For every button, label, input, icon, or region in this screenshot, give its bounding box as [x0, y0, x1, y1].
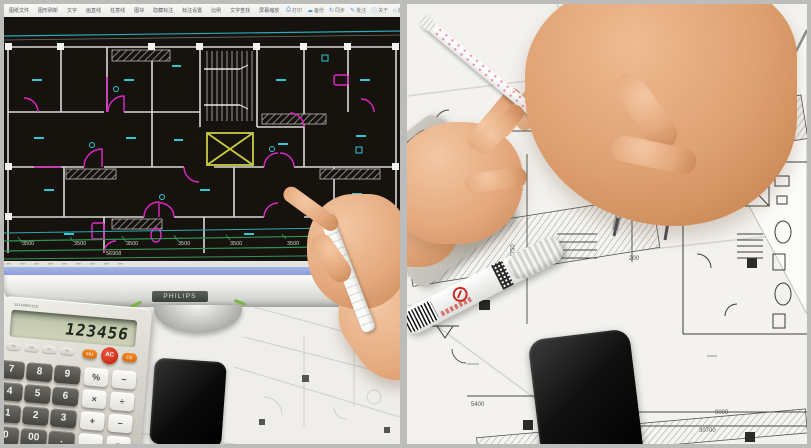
dimension-value: 3500 — [126, 241, 138, 247]
num-key: 4 — [4, 382, 23, 402]
smartphone — [149, 358, 227, 444]
op-key — [78, 433, 103, 444]
menu-item: 比例 — [209, 7, 223, 14]
num-key: 3 — [50, 408, 77, 428]
calculator: SUNWOOD 123456 MC MR M− M+ MU AC CE 7 8 … — [4, 296, 152, 444]
menu-item: 文字 — [65, 7, 79, 14]
toolbar-icon-group: ↻同步 — [329, 7, 345, 14]
left-photo: 图纸文件 图形刷新 文字 画直线 任意线 图块 隐藏标注 标注设置 比例 文字查… — [4, 4, 400, 444]
num-key: 9 — [54, 365, 81, 385]
op-key: × — [82, 389, 107, 409]
op-key: − — [107, 413, 132, 433]
memory-key: MC — [6, 342, 21, 350]
num-key: 7 — [4, 360, 25, 380]
cad-menubar: 图纸文件 图形刷新 文字 画直线 任意线 图块 隐藏标注 标注设置 比例 文字查… — [4, 4, 400, 17]
mu-key: MU — [82, 349, 98, 359]
dimension-value: 3500 — [287, 241, 299, 247]
home-icon: ⌂ — [393, 8, 397, 14]
dimension-value: 3500 — [22, 241, 34, 247]
print-icon: ⎙ — [286, 7, 291, 14]
icon-label: 首页 — [398, 7, 400, 14]
dimension-value: 3500 — [74, 241, 86, 247]
toolbar-icon-group: ☁备份 — [307, 7, 324, 14]
menu-item: 图块 — [132, 7, 146, 14]
menu-item: 任意线 — [108, 7, 127, 14]
equals-key: = — [106, 435, 131, 444]
num-key: 2 — [22, 406, 49, 426]
menu-item: 图形刷新 — [36, 7, 60, 14]
dimension-value: 3500 — [230, 241, 242, 247]
memory-key: MR — [24, 344, 39, 352]
icon-label: 同步 — [335, 7, 345, 14]
dimension-value: 3500 — [178, 241, 190, 247]
op-key: % — [83, 367, 108, 387]
toolbar-icon-group: ⌂首页 — [393, 7, 400, 14]
blueprint-dimension: 5400 — [471, 402, 484, 408]
num-key: 1 — [4, 404, 21, 424]
cloud-icon: ☁ — [307, 7, 313, 14]
menu-item: 图纸文件 — [7, 7, 31, 14]
num-key: 5 — [24, 384, 51, 404]
icon-label: 批注 — [356, 7, 366, 14]
edit-icon: ✎ — [350, 7, 355, 14]
monitor-brand-logo: PHILIPS — [152, 291, 208, 302]
toolbar-icon-group: ⎙打印 — [286, 7, 302, 14]
menu-item: 屏幕缩放 — [257, 7, 281, 14]
right-photo: 5400 9000 30700 200 2000 3750 0 0 1 4 — [407, 4, 807, 444]
toolbar-icon-group: ⓘ关于 — [371, 6, 388, 15]
smartphone — [527, 328, 644, 444]
icon-label: 关于 — [378, 7, 388, 14]
menu-item: 标注设置 — [180, 7, 204, 14]
num-key: 0 — [4, 425, 19, 444]
calculator-display-value: 123456 — [63, 319, 131, 343]
menu-item: 文字查找 — [228, 7, 252, 14]
sync-icon: ↻ — [329, 7, 334, 14]
info-icon: ⓘ — [371, 6, 377, 15]
total-dimension-value: 56908 — [106, 251, 121, 257]
op-key: ÷ — [109, 392, 134, 412]
ce-key: CE — [122, 352, 138, 362]
icon-label: 打印 — [292, 7, 302, 14]
memory-key: M+ — [60, 347, 75, 355]
photo-collage-frame: 图纸文件 图形刷新 文字 画直线 任意线 图块 隐藏标注 标注设置 比例 文字查… — [0, 0, 811, 448]
blueprint-dimension: 9000 — [715, 410, 728, 416]
op-key: + — [80, 411, 105, 431]
icon-label: 备份 — [314, 7, 324, 14]
memory-key: M− — [42, 345, 57, 353]
num-key: . — [48, 430, 75, 444]
num-key: 00 — [20, 428, 47, 444]
op-key: − — [111, 370, 136, 390]
num-key: 8 — [26, 362, 53, 382]
num-key: 6 — [52, 386, 79, 406]
blueprint-dimension: 30700 — [699, 428, 716, 434]
menu-item: 隐藏标注 — [151, 7, 175, 14]
menu-item: 画直线 — [84, 7, 103, 14]
toolbar-icon-group: ✎批注 — [350, 7, 366, 14]
